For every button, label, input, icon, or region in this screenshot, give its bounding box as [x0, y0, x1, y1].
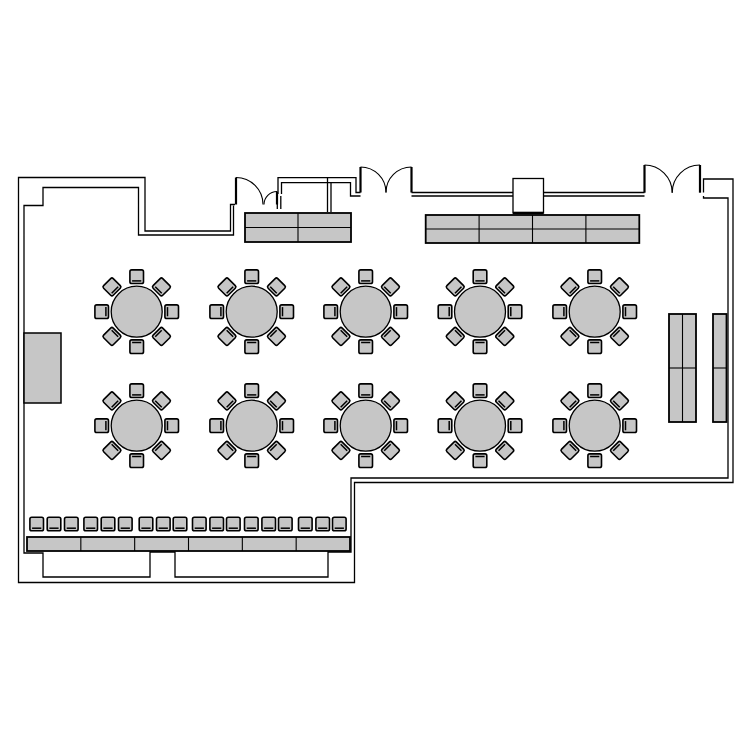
chair: [227, 517, 241, 531]
chair: [95, 305, 109, 319]
chair: [588, 384, 602, 398]
chair: [30, 517, 44, 531]
side-table-double: [669, 314, 696, 422]
chair: [130, 270, 144, 284]
chair: [65, 517, 79, 531]
side-table-single: [713, 314, 727, 422]
chair: [473, 340, 487, 354]
round-table-group: [95, 270, 179, 354]
round-table: [226, 286, 277, 337]
chair: [324, 419, 338, 433]
floor-plan-page: [0, 0, 750, 750]
chair: [245, 270, 259, 284]
chair: [324, 305, 338, 319]
round-table: [340, 286, 391, 337]
chair: [333, 517, 347, 531]
chair: [473, 454, 487, 468]
chair: [165, 305, 179, 319]
chair: [623, 419, 637, 433]
chair: [245, 340, 259, 354]
chair: [210, 517, 224, 531]
round-table-group: [438, 384, 522, 468]
chair: [210, 305, 224, 319]
chair: [473, 270, 487, 284]
chair: [588, 454, 602, 468]
round-table: [455, 286, 506, 337]
chair: [245, 384, 259, 398]
round-table: [111, 286, 162, 337]
floor-background: [0, 0, 750, 750]
round-table-group: [438, 270, 522, 354]
chair: [84, 517, 98, 531]
round-table: [340, 400, 391, 451]
round-table-group: [210, 270, 294, 354]
round-table: [569, 286, 620, 337]
chair: [210, 419, 224, 433]
head-table: [27, 537, 350, 551]
chair: [139, 517, 153, 531]
chair: [588, 270, 602, 284]
chair: [359, 340, 373, 354]
floor-plan-svg: [0, 0, 750, 750]
chair: [165, 419, 179, 433]
chair: [508, 305, 522, 319]
chair: [280, 419, 294, 433]
chair: [316, 517, 330, 531]
chair: [119, 517, 133, 531]
chair: [95, 419, 109, 433]
chair: [508, 419, 522, 433]
round-table: [569, 400, 620, 451]
chair: [553, 305, 567, 319]
round-table-group: [553, 270, 637, 354]
chair: [438, 419, 452, 433]
round-table-group: [324, 270, 408, 354]
round-table-group: [553, 384, 637, 468]
chair: [157, 517, 171, 531]
chair: [623, 305, 637, 319]
chair: [279, 517, 293, 531]
chair: [101, 517, 115, 531]
chair: [130, 340, 144, 354]
buffet-table-left: [245, 213, 351, 242]
round-table: [455, 400, 506, 451]
chair: [130, 384, 144, 398]
chair: [359, 270, 373, 284]
chair: [438, 305, 452, 319]
chair: [130, 454, 144, 468]
round-table-group: [95, 384, 179, 468]
chair: [245, 454, 259, 468]
chair: [173, 517, 187, 531]
chair: [553, 419, 567, 433]
chair: [359, 384, 373, 398]
chair: [394, 419, 408, 433]
chair: [245, 517, 259, 531]
chair: [473, 384, 487, 398]
chair: [280, 305, 294, 319]
buffet-table-right: [426, 215, 640, 243]
chair: [588, 340, 602, 354]
chair: [47, 517, 61, 531]
wall-pillar: [513, 179, 544, 214]
round-table-group: [324, 384, 408, 468]
chair: [262, 517, 276, 531]
round-table-group: [210, 384, 294, 468]
round-table: [226, 400, 277, 451]
chair: [394, 305, 408, 319]
wall-counter: [24, 333, 61, 403]
chair: [193, 517, 207, 531]
chair: [299, 517, 313, 531]
round-table: [111, 400, 162, 451]
chair: [359, 454, 373, 468]
